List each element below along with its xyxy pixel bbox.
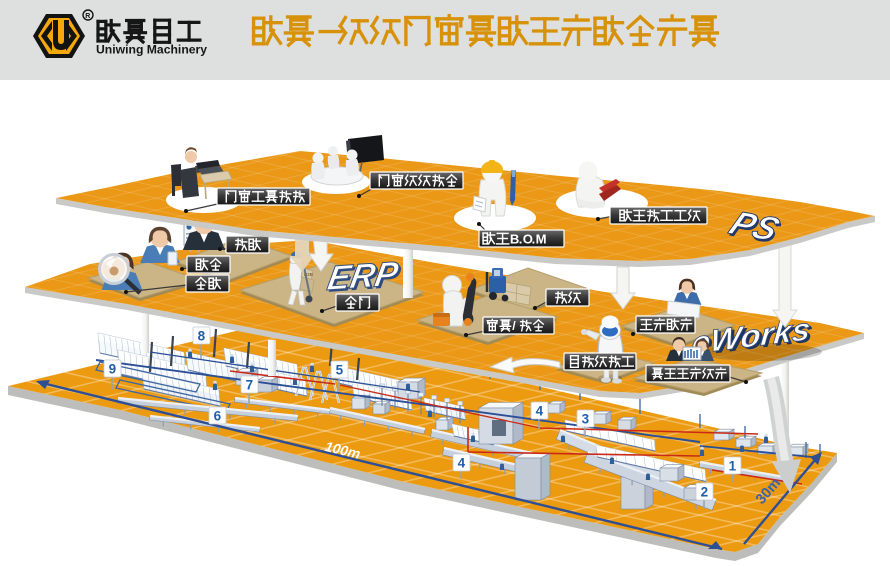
svg-text:ERP: ERP <box>325 255 402 298</box>
svg-text:5: 5 <box>336 363 344 378</box>
svg-text:4: 4 <box>536 404 544 419</box>
svg-text:3: 3 <box>582 412 590 427</box>
svg-text:4: 4 <box>458 456 466 471</box>
svg-text:Uniwing Machinery: Uniwing Machinery <box>96 43 207 57</box>
svg-text:1: 1 <box>729 459 737 474</box>
svg-text:/: / <box>512 319 516 333</box>
svg-text:M: M <box>536 231 547 246</box>
svg-text:9: 9 <box>109 362 117 377</box>
svg-text:2: 2 <box>701 485 709 500</box>
svg-text:7: 7 <box>246 378 254 393</box>
svg-text:R: R <box>85 13 90 20</box>
svg-text:6: 6 <box>214 409 222 424</box>
svg-text:B2B: B2B <box>304 272 314 277</box>
svg-text:8: 8 <box>198 329 206 344</box>
